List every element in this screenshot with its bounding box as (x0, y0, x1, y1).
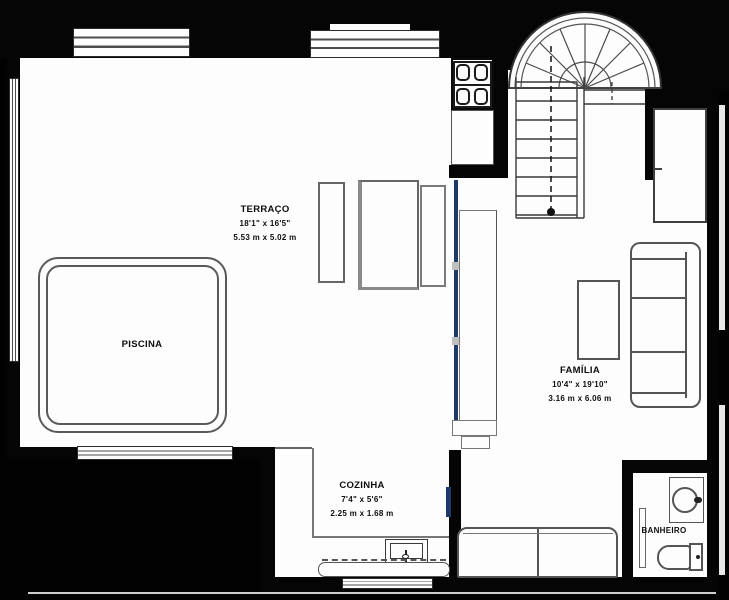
kitchen-zone-line (312, 536, 449, 538)
wall-bottom (260, 577, 710, 592)
floor-plan: TERRAÇO 18'1" x 16'5" 5.53 m x 5.02 m PI… (0, 0, 729, 600)
kitchen-counter-upper (451, 110, 494, 165)
window-east-lower (719, 405, 725, 575)
room-name: TERRAÇO (205, 203, 325, 217)
room-dims-imperial: 10'4" x 19'10" (520, 378, 640, 392)
bathroom-door (639, 508, 646, 568)
sofa-three-seat (630, 242, 701, 408)
wardrobe (653, 108, 707, 223)
pool-label: PISCINA (92, 338, 192, 352)
sofa-edge-line (463, 533, 613, 534)
wall-east (707, 90, 719, 592)
window-top-center (310, 30, 440, 58)
sofa-cushion-line (537, 529, 539, 577)
stair-upper-steps-zone (584, 82, 645, 183)
coffee-table (577, 280, 620, 360)
room-dims-metric: 5.53 m x 5.02 m (205, 231, 325, 245)
window-left (9, 78, 19, 362)
window-east-upper (719, 105, 725, 330)
window-terrace-bottom (77, 446, 233, 460)
burner-icon (474, 64, 488, 81)
sofa-back-line (685, 252, 687, 398)
sliding-glass-door (454, 180, 458, 432)
wall-beside-stove (494, 58, 508, 178)
terrace-label: TERRAÇO 18'1" x 16'5" 5.53 m x 5.02 m (205, 203, 325, 245)
family-room-label: FAMÍLIA 10'4" x 19'10" 3.16 m x 6.06 m (520, 364, 640, 406)
wall-wardrobe-top (645, 88, 719, 110)
wardrobe-shelf-line (653, 168, 662, 170)
toilet-flush-button (696, 555, 700, 559)
room-name: COZINHA (302, 479, 422, 493)
wall-under-counter (449, 165, 508, 178)
wall-bathroom-west (622, 460, 633, 577)
kitchen-counter-lower (318, 562, 450, 577)
sofa-cushion-line (632, 297, 685, 299)
stove-module-split (455, 84, 490, 86)
burner-icon (474, 88, 488, 105)
room-dims-metric: 3.16 m x 6.06 m (520, 392, 640, 406)
kitchen-zone-line (275, 447, 312, 449)
wall-bathroom-top (622, 460, 707, 473)
kitchen-label: COZINHA 7'4" x 5'6" 2.25 m x 1.68 m (302, 479, 422, 521)
terrace-bench-right (420, 185, 446, 287)
room-name: PISCINA (92, 338, 192, 352)
room-name: BANHEIRO (624, 524, 704, 538)
burner-icon (456, 88, 470, 105)
window-kitchen-bottom (342, 578, 433, 589)
kitchen-cabinet (452, 420, 497, 436)
room-dims-metric: 2.25 m x 1.68 m (302, 507, 422, 521)
room-name: FAMÍLIA (520, 364, 640, 378)
window-top-left (73, 28, 190, 57)
wall-wardrobe-left (645, 108, 653, 180)
counter-dashed-edge (322, 559, 446, 561)
room-dims-imperial: 18'1" x 16'5" (205, 217, 325, 231)
terrace-table (358, 180, 419, 290)
stair-flight-zone (508, 70, 584, 218)
kitchen-counter-strip (459, 210, 497, 432)
toilet-icon (657, 545, 691, 570)
room-dims-imperial: 7'4" x 5'6" (302, 493, 422, 507)
kitchen-cabinet-small (461, 436, 490, 449)
sofa-cushion-line (632, 351, 685, 353)
drawing-baseline (28, 592, 716, 594)
wall-kitchen-west (260, 447, 275, 592)
faucet-icon (694, 497, 702, 503)
burner-icon (456, 64, 470, 81)
bathroom-label: BANHEIRO (624, 524, 704, 538)
glass-door-lower (446, 487, 451, 517)
sofa-arm-line (632, 258, 685, 260)
